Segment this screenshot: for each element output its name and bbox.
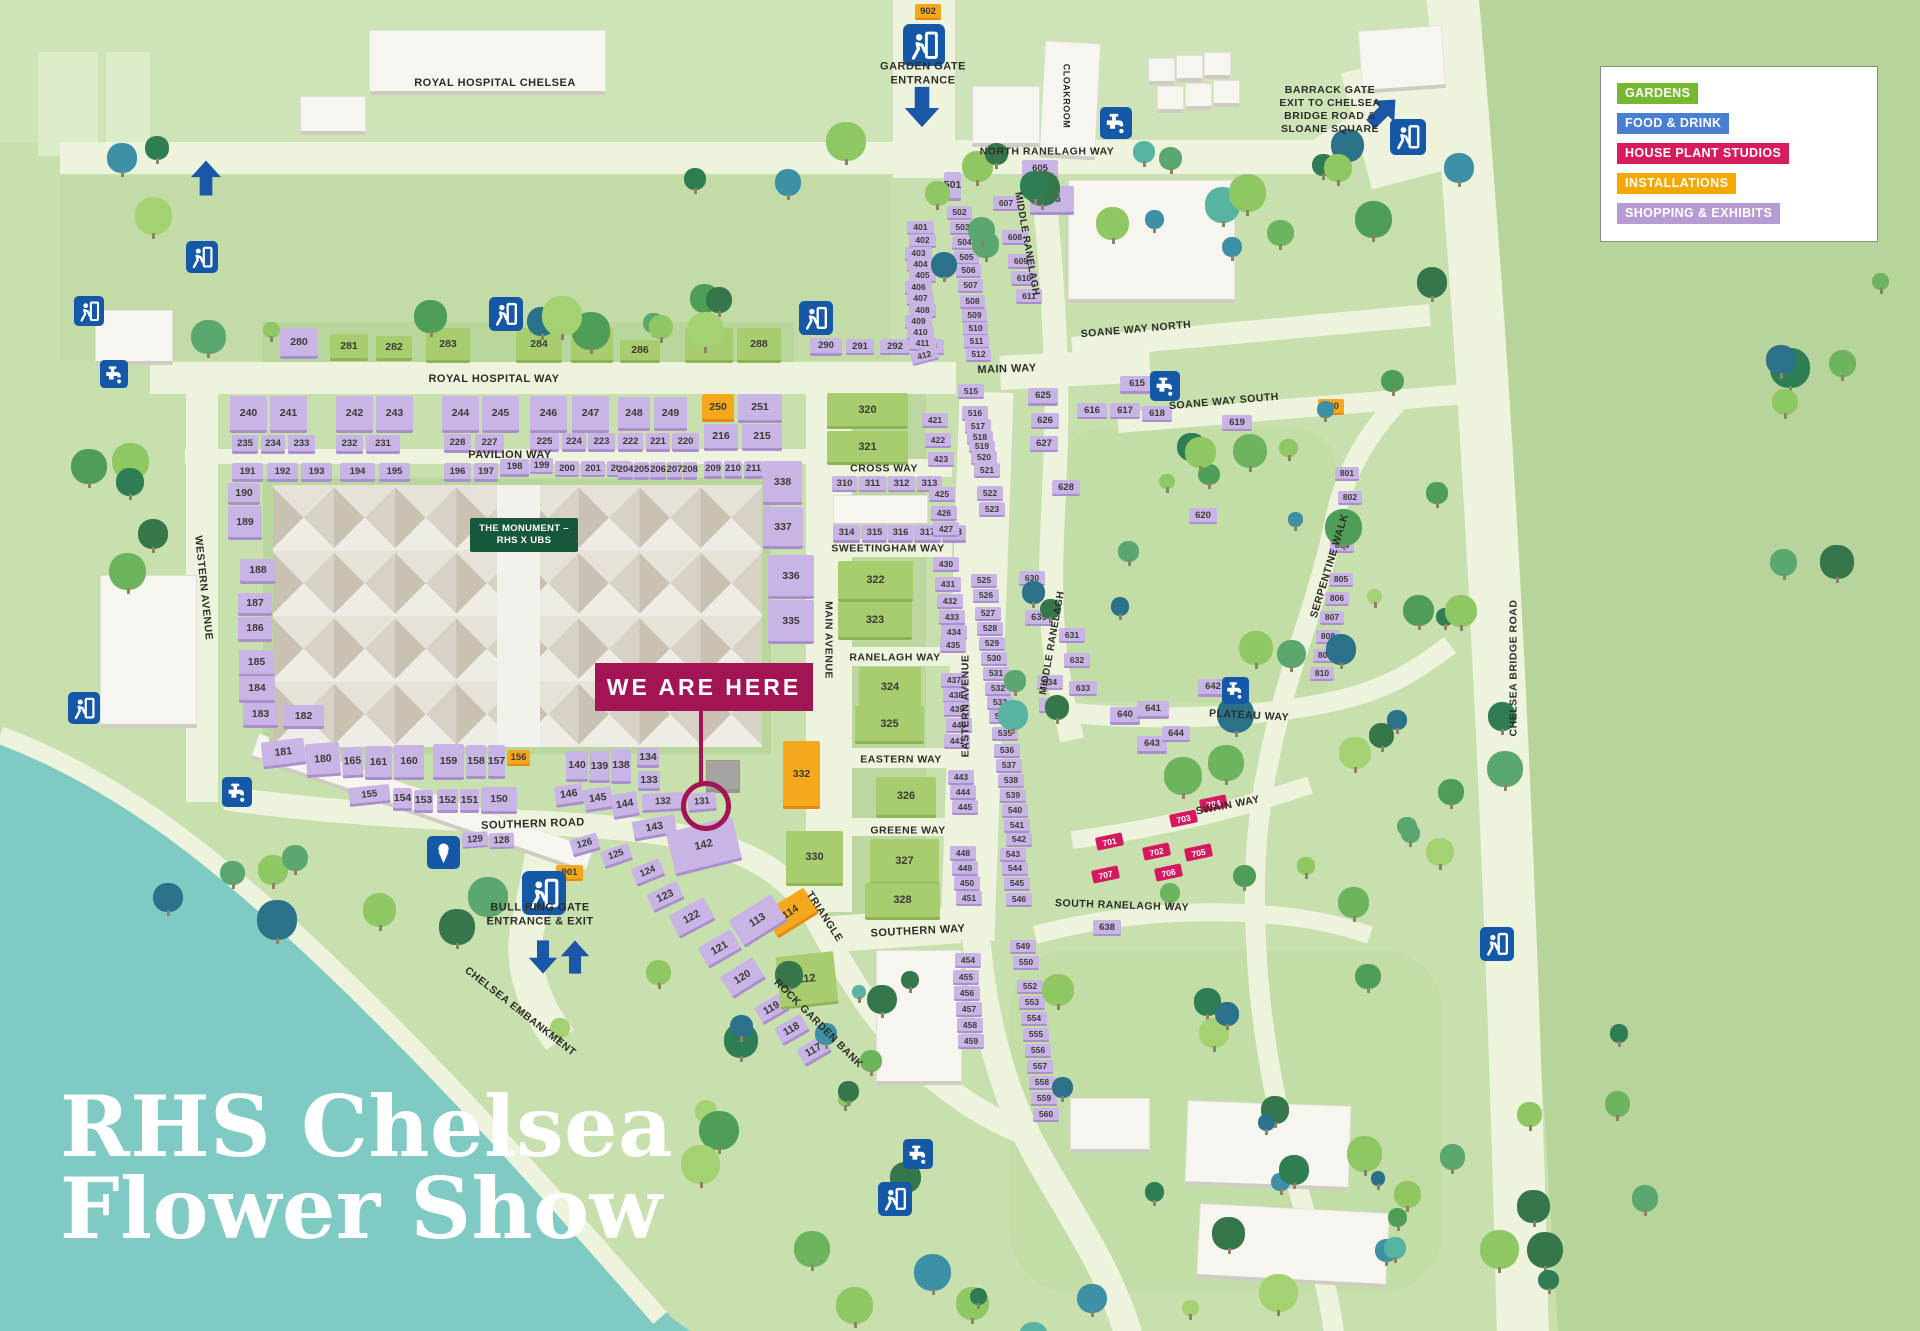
tree-icon bbox=[1215, 1002, 1239, 1026]
building bbox=[300, 96, 366, 135]
plot-538: 538 bbox=[998, 774, 1024, 788]
plot-194: 194 bbox=[340, 463, 375, 482]
tree-icon bbox=[1042, 974, 1074, 1006]
tree-icon bbox=[646, 960, 671, 985]
plot-281: 281 bbox=[330, 334, 368, 361]
plot-126: 126 bbox=[569, 832, 601, 857]
tree-icon bbox=[1326, 634, 1357, 665]
tree-icon bbox=[1118, 541, 1139, 562]
label-pavilion-way: PAVILION WAY bbox=[468, 449, 551, 463]
plot-455: 455 bbox=[953, 970, 979, 985]
tree-icon bbox=[1388, 1208, 1407, 1227]
label-ranelagh-way: RANELAGH WAY bbox=[849, 651, 940, 664]
plot-515: 515 bbox=[958, 384, 984, 399]
exit-icon bbox=[1480, 927, 1514, 961]
plot-554: 554 bbox=[1021, 1012, 1047, 1026]
tap-icon bbox=[1150, 371, 1180, 401]
tree-icon bbox=[1829, 350, 1856, 377]
building bbox=[1204, 52, 1231, 79]
plot-216: 216 bbox=[704, 424, 738, 451]
label-cross-way: CROSS WAY bbox=[850, 462, 918, 475]
tree-icon bbox=[1267, 220, 1294, 247]
plot-425: 425 bbox=[929, 487, 955, 502]
plot-810: 810 bbox=[1310, 667, 1334, 681]
label-greene-way: GREENE WAY bbox=[870, 824, 945, 837]
plot-244: 244 bbox=[442, 396, 479, 433]
plot-146: 146 bbox=[554, 783, 585, 808]
tree-icon bbox=[998, 700, 1027, 729]
plot-618: 618 bbox=[1142, 406, 1172, 422]
plot-234: 234 bbox=[261, 435, 285, 454]
plot-450: 450 bbox=[954, 876, 980, 891]
plot-555: 555 bbox=[1023, 1028, 1049, 1042]
tree-icon bbox=[775, 169, 801, 195]
plot-330: 330 bbox=[786, 831, 843, 886]
plot-631: 631 bbox=[1059, 628, 1085, 643]
tree-icon bbox=[1445, 595, 1477, 627]
plot-144: 144 bbox=[610, 791, 640, 820]
tree-icon bbox=[1487, 751, 1523, 787]
tree-icon bbox=[1164, 757, 1202, 795]
tree-icon bbox=[1212, 1217, 1245, 1250]
plot-335: 335 bbox=[768, 600, 814, 644]
plot-332: 332 bbox=[783, 741, 820, 809]
plot-129: 129 bbox=[461, 831, 488, 849]
legend-item-food-drink: FOOD & DRINK bbox=[1617, 113, 1729, 134]
tree-icon bbox=[1045, 695, 1070, 720]
tree-icon bbox=[1371, 1171, 1385, 1185]
tree-icon bbox=[826, 122, 866, 162]
plot-186: 186 bbox=[238, 617, 272, 642]
tree-icon bbox=[1480, 1230, 1519, 1269]
building bbox=[1185, 83, 1212, 110]
plot-156: 156 bbox=[507, 750, 530, 766]
tree-icon bbox=[1279, 1155, 1309, 1185]
tree-icon bbox=[684, 168, 706, 190]
plot-157: 157 bbox=[488, 745, 505, 779]
tree-icon bbox=[730, 1015, 753, 1038]
plot-324: 324 bbox=[859, 667, 921, 709]
plot-632: 632 bbox=[1064, 653, 1090, 668]
plot-705: 705 bbox=[1184, 843, 1213, 861]
label-garden-gate-entrance: GARDEN GATE ENTRANCE bbox=[880, 60, 966, 88]
plot-527: 527 bbox=[975, 607, 1001, 621]
plot-557: 557 bbox=[1027, 1060, 1053, 1074]
tree-icon bbox=[1208, 745, 1244, 781]
plot-526: 526 bbox=[973, 589, 999, 603]
plot-401: 401 bbox=[907, 221, 934, 235]
plot-233: 233 bbox=[288, 435, 315, 454]
legend-row: SHOPPING & EXHIBITS bbox=[1617, 203, 1861, 224]
plot-154: 154 bbox=[393, 788, 412, 811]
plot-325: 325 bbox=[855, 706, 924, 744]
label-royal-hospital-chelsea: ROYAL HOSPITAL CHELSEA bbox=[414, 77, 576, 91]
legend-item-shopping-exhibits: SHOPPING & EXHIBITS bbox=[1617, 203, 1780, 224]
plot-616: 616 bbox=[1077, 403, 1107, 419]
tree-icon bbox=[257, 900, 297, 940]
plot-560: 560 bbox=[1033, 1108, 1059, 1122]
plot-328: 328 bbox=[865, 883, 940, 920]
plot-240: 240 bbox=[230, 396, 267, 433]
arrow-icon bbox=[899, 84, 945, 130]
plot-246: 246 bbox=[530, 396, 567, 433]
plot-423: 423 bbox=[928, 452, 954, 467]
we-are-here-pointer bbox=[699, 711, 703, 784]
plot-806: 806 bbox=[1325, 592, 1349, 606]
plot-139: 139 bbox=[589, 751, 610, 783]
plot-315: 315 bbox=[862, 525, 887, 543]
plot-187: 187 bbox=[238, 593, 272, 616]
label-soane-way-north: SOANE WAY NORTH bbox=[1080, 319, 1192, 342]
chelsea-flower-show-map: THE MONUMENT – RHS X UBS 280281282283284… bbox=[0, 0, 1920, 1331]
tree-icon bbox=[71, 449, 106, 484]
plot-211: 211 bbox=[744, 461, 763, 479]
tree-icon bbox=[1610, 1024, 1629, 1043]
legend-item-gardens: GARDENS bbox=[1617, 83, 1698, 104]
tree-icon bbox=[135, 197, 173, 235]
plot-502: 502 bbox=[947, 206, 972, 220]
plot-617: 617 bbox=[1110, 403, 1140, 419]
plot-706: 706 bbox=[1154, 863, 1183, 881]
tree-icon bbox=[1020, 171, 1050, 201]
plot-456: 456 bbox=[954, 986, 980, 1001]
tree-icon bbox=[1338, 887, 1369, 918]
building bbox=[1148, 58, 1175, 85]
map-title-line2: Flower Show bbox=[60, 1168, 673, 1250]
plot-121: 121 bbox=[698, 929, 743, 969]
tree-icon bbox=[1182, 1300, 1198, 1316]
label-chelsea-embankment: CHELSEA EMBANKMENT bbox=[462, 964, 578, 1059]
plot-326: 326 bbox=[876, 777, 936, 818]
tree-icon bbox=[1772, 389, 1798, 415]
plot-207: 207 bbox=[667, 462, 682, 480]
plot-627: 627 bbox=[1030, 436, 1058, 452]
plot-312: 312 bbox=[888, 476, 915, 492]
plot-402: 402 bbox=[909, 234, 936, 248]
plot-457: 457 bbox=[956, 1002, 982, 1017]
building bbox=[1176, 55, 1203, 82]
plot-537: 537 bbox=[996, 759, 1022, 773]
plot-120: 120 bbox=[720, 957, 766, 999]
plot-703: 703 bbox=[1169, 809, 1198, 827]
plot-451: 451 bbox=[956, 891, 982, 906]
plot-204: 204 bbox=[618, 462, 633, 480]
plot-133: 133 bbox=[638, 771, 660, 791]
plot-220: 220 bbox=[672, 433, 699, 452]
tree-icon bbox=[1444, 153, 1474, 183]
plot-539: 539 bbox=[1000, 789, 1026, 803]
legend: GARDENSFOOD & DRINKHOUSE PLANT STUDIOSIN… bbox=[1600, 66, 1878, 242]
plot-128: 128 bbox=[489, 833, 515, 850]
exit-icon bbox=[68, 692, 100, 724]
label-north-ranelagh-way: NORTH RANELAGH WAY bbox=[980, 145, 1115, 158]
plot-444: 444 bbox=[950, 785, 976, 800]
tap-icon bbox=[903, 1139, 933, 1169]
tree-icon bbox=[925, 181, 950, 206]
label-chelsea-bridge-road: CHELSEA BRIDGE ROAD bbox=[1507, 600, 1520, 737]
plot-286: 286 bbox=[620, 340, 660, 363]
plot-251: 251 bbox=[738, 394, 782, 423]
plot-181: 181 bbox=[261, 737, 307, 769]
tree-icon bbox=[1096, 207, 1129, 240]
plot-124: 124 bbox=[631, 858, 666, 887]
plot-432: 432 bbox=[937, 594, 963, 609]
plot-523: 523 bbox=[979, 502, 1005, 517]
plot-633: 633 bbox=[1069, 681, 1097, 696]
tap-icon bbox=[100, 360, 128, 388]
plot-511: 511 bbox=[964, 335, 989, 349]
tree-icon bbox=[1766, 345, 1796, 375]
tree-icon bbox=[1317, 401, 1334, 418]
plot-188: 188 bbox=[240, 559, 276, 584]
plot-192: 192 bbox=[267, 463, 298, 482]
tree-icon bbox=[414, 300, 447, 333]
plot-159: 159 bbox=[433, 744, 464, 780]
plot-336: 336 bbox=[768, 555, 814, 599]
tree-icon bbox=[1401, 824, 1420, 843]
plot-801: 801 bbox=[1335, 467, 1359, 481]
exit-icon bbox=[489, 297, 523, 331]
plot-132: 132 bbox=[642, 792, 685, 813]
tree-icon bbox=[263, 322, 280, 339]
plot-443: 443 bbox=[948, 770, 974, 785]
label-eastern-avenue: EASTERN AVENUE bbox=[959, 655, 972, 758]
monument-label: THE MONUMENT – RHS X UBS bbox=[470, 518, 578, 552]
plot-180: 180 bbox=[305, 742, 341, 778]
plot-701: 701 bbox=[1095, 832, 1124, 850]
plot-509: 509 bbox=[962, 309, 987, 323]
plot-310: 310 bbox=[832, 476, 857, 492]
tree-icon bbox=[1279, 439, 1297, 457]
tree-icon bbox=[1233, 865, 1256, 888]
road-south-ranelagh-way bbox=[1035, 912, 1370, 935]
lawn-patch bbox=[38, 52, 98, 156]
label-sweetingham-way: SWEETINGHAM WAY bbox=[831, 542, 944, 555]
building bbox=[1157, 86, 1184, 113]
plot-314: 314 bbox=[833, 525, 860, 543]
plot-190: 190 bbox=[228, 483, 260, 505]
plot-291: 291 bbox=[846, 339, 874, 355]
plot-323: 323 bbox=[838, 602, 912, 640]
plot-205: 205 bbox=[634, 462, 649, 480]
plot-209: 209 bbox=[704, 461, 722, 479]
plot-327: 327 bbox=[870, 839, 939, 885]
tree-icon bbox=[1355, 201, 1392, 238]
icecream-icon bbox=[427, 836, 460, 869]
plot-292: 292 bbox=[880, 339, 910, 355]
map-title: RHS Chelsea Flower Show bbox=[60, 1086, 673, 1251]
plot-556: 556 bbox=[1025, 1044, 1051, 1058]
tree-icon bbox=[1239, 631, 1273, 665]
plot-196: 196 bbox=[444, 463, 471, 482]
plot-160: 160 bbox=[394, 745, 424, 780]
plot-241: 241 bbox=[270, 396, 307, 433]
plot-641: 641 bbox=[1137, 701, 1169, 719]
plot-421: 421 bbox=[922, 413, 948, 428]
plot-191: 191 bbox=[232, 463, 263, 482]
tree-icon bbox=[1426, 482, 1448, 504]
plot-185: 185 bbox=[239, 650, 274, 677]
plot-427: 427 bbox=[933, 522, 959, 537]
plot-125: 125 bbox=[600, 843, 633, 869]
tree-icon bbox=[542, 296, 582, 336]
tree-icon bbox=[1527, 1232, 1563, 1268]
plot-638: 638 bbox=[1093, 920, 1121, 936]
tree-icon bbox=[1159, 474, 1175, 490]
tree-icon bbox=[1394, 1181, 1421, 1208]
plot-431: 431 bbox=[935, 577, 961, 592]
plot-183: 183 bbox=[243, 703, 278, 728]
plot-546: 546 bbox=[1006, 893, 1032, 907]
tree-icon bbox=[107, 143, 137, 173]
label-cloakroom: CLOAKROOM bbox=[1060, 64, 1071, 129]
plot-322: 322 bbox=[838, 561, 913, 602]
tree-icon bbox=[220, 861, 244, 885]
plot-228: 228 bbox=[444, 434, 471, 453]
plot-628: 628 bbox=[1052, 480, 1080, 496]
tree-icon bbox=[191, 320, 225, 354]
plot-248: 248 bbox=[618, 397, 650, 431]
plot-525: 525 bbox=[971, 574, 997, 588]
plot-508: 508 bbox=[960, 295, 985, 309]
plot-528: 528 bbox=[977, 622, 1003, 636]
plot-445: 445 bbox=[952, 800, 978, 815]
plot-507: 507 bbox=[958, 279, 983, 293]
tree-icon bbox=[1339, 737, 1371, 769]
tree-icon bbox=[706, 287, 732, 313]
plot-208: 208 bbox=[683, 462, 697, 480]
plot-620: 620 bbox=[1189, 508, 1217, 524]
plot-197: 197 bbox=[474, 463, 498, 482]
tree-icon bbox=[970, 1288, 987, 1305]
tree-icon bbox=[1605, 1091, 1631, 1117]
tree-icon bbox=[1145, 1182, 1165, 1202]
plot-140: 140 bbox=[566, 751, 588, 782]
tree-icon bbox=[1538, 1270, 1559, 1291]
tree-icon bbox=[1258, 1114, 1275, 1131]
plot-448: 448 bbox=[950, 846, 976, 861]
tree-icon bbox=[1133, 141, 1155, 163]
map-title-line1: RHS Chelsea bbox=[60, 1086, 673, 1168]
plot-807: 807 bbox=[1320, 611, 1344, 625]
label-swain-way: SWAIN WAY bbox=[1195, 793, 1261, 818]
tree-icon bbox=[1111, 597, 1129, 615]
arrow-icon bbox=[556, 938, 594, 976]
plot-184: 184 bbox=[239, 676, 275, 703]
plot-151: 151 bbox=[460, 789, 479, 813]
plot-201: 201 bbox=[581, 461, 605, 477]
plot-529: 529 bbox=[979, 637, 1005, 651]
tree-icon bbox=[1159, 147, 1182, 170]
tree-icon bbox=[1324, 154, 1352, 182]
plot-626: 626 bbox=[1031, 413, 1059, 429]
tree-icon bbox=[1077, 1284, 1107, 1314]
tree-icon bbox=[1367, 589, 1382, 604]
tree-icon bbox=[1872, 273, 1889, 290]
tree-icon bbox=[1632, 1185, 1658, 1211]
plot-433: 433 bbox=[939, 610, 965, 625]
tree-icon bbox=[1517, 1102, 1542, 1127]
label-soane-way-south: SOANE WAY SOUTH bbox=[1169, 391, 1280, 414]
legend-row: HOUSE PLANT STUDIOS bbox=[1617, 143, 1861, 164]
tree-icon bbox=[439, 909, 474, 944]
plot-542: 542 bbox=[1006, 833, 1032, 847]
tree-icon bbox=[867, 985, 897, 1015]
plot-223: 223 bbox=[588, 433, 615, 452]
plot-158: 158 bbox=[466, 745, 486, 779]
plot-152: 152 bbox=[437, 789, 458, 813]
plot-221: 221 bbox=[646, 433, 670, 452]
plot-426: 426 bbox=[931, 506, 957, 521]
plot-235: 235 bbox=[232, 435, 258, 454]
plot-165: 165 bbox=[341, 746, 364, 778]
plot-640: 640 bbox=[1110, 707, 1140, 725]
plot-544: 544 bbox=[1002, 862, 1028, 876]
tree-icon bbox=[1297, 857, 1315, 875]
plot-231: 231 bbox=[366, 435, 400, 454]
plot-321: 321 bbox=[827, 431, 908, 465]
plot-195: 195 bbox=[379, 463, 410, 482]
plot-150: 150 bbox=[481, 787, 517, 814]
plot-449: 449 bbox=[952, 861, 978, 876]
building bbox=[95, 310, 173, 365]
plot-138: 138 bbox=[611, 749, 631, 784]
exit-icon bbox=[186, 241, 218, 273]
plot-200: 200 bbox=[555, 461, 579, 477]
label-main-avenue: MAIN AVENUE bbox=[821, 601, 834, 679]
tree-icon bbox=[1426, 838, 1454, 866]
tree-icon bbox=[363, 893, 396, 926]
plot-316: 316 bbox=[888, 525, 913, 543]
plot-550: 550 bbox=[1013, 956, 1039, 970]
plot-536: 536 bbox=[994, 744, 1020, 758]
tree-icon bbox=[145, 136, 169, 160]
exit-icon bbox=[878, 1182, 912, 1216]
plot-644: 644 bbox=[1162, 726, 1190, 742]
tree-icon bbox=[1019, 1322, 1048, 1331]
tree-icon bbox=[1022, 581, 1045, 604]
tree-icon bbox=[931, 252, 957, 278]
plot-249: 249 bbox=[654, 397, 687, 431]
lawn-patch bbox=[106, 52, 150, 156]
plot-232: 232 bbox=[336, 435, 363, 454]
plot-282: 282 bbox=[376, 336, 412, 361]
tree-icon bbox=[1222, 237, 1242, 257]
tree-icon bbox=[109, 553, 146, 590]
tree-icon bbox=[116, 468, 144, 496]
label-royal-hospital-way: ROYAL HOSPITAL WAY bbox=[428, 373, 559, 387]
plot-512: 512 bbox=[966, 348, 991, 362]
building bbox=[833, 495, 928, 527]
plot-288: 288 bbox=[737, 328, 781, 363]
plot-206: 206 bbox=[650, 462, 666, 480]
legend-item-installations: INSTALLATIONS bbox=[1617, 173, 1736, 194]
plot-619: 619 bbox=[1222, 415, 1252, 431]
plot-153: 153 bbox=[414, 790, 433, 813]
tree-icon bbox=[1440, 1144, 1465, 1169]
plot-549: 549 bbox=[1010, 940, 1036, 954]
tree-icon bbox=[1185, 437, 1216, 468]
plot-123: 123 bbox=[646, 881, 684, 913]
tree-icon bbox=[1770, 549, 1797, 576]
tree-icon bbox=[1417, 267, 1448, 298]
building bbox=[876, 950, 962, 1085]
tree-icon bbox=[1145, 210, 1164, 229]
legend-item-house-plant-studios: HOUSE PLANT STUDIOS bbox=[1617, 143, 1789, 164]
plot-454: 454 bbox=[955, 953, 981, 968]
plot-902: 902 bbox=[915, 4, 941, 20]
tree-icon bbox=[1384, 1237, 1406, 1259]
